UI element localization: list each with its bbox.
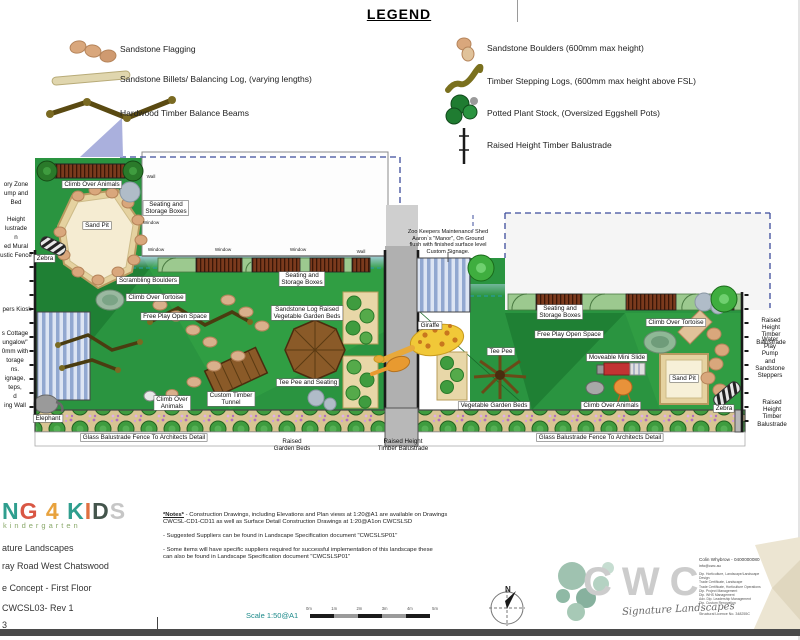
plan-label: Seating and Storage Boxes <box>537 305 582 319</box>
firm-logo: CWC <box>583 560 709 605</box>
plan-label: Water Play Pump and Sandstone Steppers <box>755 336 785 379</box>
plan-label: Elephant <box>34 415 63 422</box>
plan-label: ory Zone ump and Bed <box>4 180 28 207</box>
plan-label: Climb Over Animals <box>581 402 640 409</box>
boundary-tick-line <box>517 0 518 22</box>
legend-label: Hardwood Timber Balance Beams <box>120 108 249 118</box>
logo-subtitle: kindergarten <box>3 521 81 530</box>
plan-label: Window <box>143 220 159 225</box>
timber-stepping-logs-icon <box>444 64 484 94</box>
legend-label: Potted Plant Stock, (Oversized Eggshell … <box>487 108 660 118</box>
plan-label: Climb Over Tortoise <box>126 294 185 301</box>
notes-body: - Construction Drawings, including Eleva… <box>163 512 447 560</box>
plan-label: Giraffe <box>419 322 442 329</box>
plan-label: Custom Timber Tunnel <box>208 392 255 406</box>
legend-label: Raised Height Timber Balustrade <box>487 140 612 150</box>
plan-label: Climb Over Tortoise <box>646 319 705 326</box>
plan-label: Window <box>148 247 164 252</box>
notes-block: *Notes* - Construction Drawings, includi… <box>163 512 498 561</box>
plan-label: Glass Balustrade Fence To Architects Det… <box>81 434 207 441</box>
potted-plant-stock-icon <box>444 92 484 128</box>
plan-label: Moveable Mini Slide <box>587 354 647 361</box>
plan-label: Window <box>215 247 231 252</box>
plan-label: s Cottage ungalow" 0mm with torage ns. i… <box>2 329 28 410</box>
footer-bar <box>0 629 800 636</box>
legend-label: Timber Stepping Logs, (600mm max height … <box>487 76 696 86</box>
plan-label: Height lustrade n ed Mural ustic Fence <box>0 215 32 260</box>
plan-label: Zoo Keepers Maintenance Shed Aaron`s "Ma… <box>408 229 488 255</box>
plan-label: Window <box>290 247 306 252</box>
plan-label: Sand Pit <box>83 222 111 229</box>
contact-email: info@cwc.au <box>699 564 761 568</box>
plan-label: Wall <box>147 174 156 179</box>
plan-label: Sand Pit <box>670 375 698 382</box>
drawing-sheet: LEGEND Sandstone Flagging Sandstone Bill… <box>0 0 800 640</box>
legend-label: Sandstone Flagging <box>120 44 196 54</box>
plan-label: Tee Pee and Seating <box>277 379 339 386</box>
titleblock-row: CWCSL03- Rev 1 <box>2 603 74 613</box>
compass-north-label: N <box>505 585 511 594</box>
titleblock-row: ray Road West Chatswood <box>2 561 109 571</box>
plan-label: Seating and Storage Boxes <box>279 272 324 286</box>
plan-label: pers Kiosk <box>3 305 32 314</box>
plan-label: Tee Pee <box>487 348 514 355</box>
plan-label: Free Play Open Space <box>535 331 603 338</box>
raised-balustrade-icon <box>456 126 472 166</box>
plan-label: Climb Over Animals <box>62 181 121 188</box>
plan-label: Sandstone Log Raised Vegetable Garden Be… <box>272 306 343 320</box>
scale-ticks: 0m1m2m3m4m5m <box>306 606 438 611</box>
plan-label: Glass Balustrade Fence To Architects Det… <box>537 434 663 441</box>
plan-label: Vegetable Garden Beds <box>459 402 530 409</box>
contact-name: Colin Whybrow - 0400000080 <box>699 557 761 562</box>
sandstone-boulders-icon <box>450 36 482 64</box>
licence: Structural Licence No. 348255C <box>699 612 761 616</box>
firm-contact: Colin Whybrow - 0400000080 info@cwc.au D… <box>699 557 761 616</box>
legend-title: LEGEND <box>0 6 798 22</box>
titleblock-row: e Concept - First Floor <box>2 583 92 593</box>
credentials: Dip. Horticulture, Landscape/Landscape D… <box>699 572 761 606</box>
scale-segments <box>310 614 430 618</box>
titleblock-row: ature Landscapes <box>2 543 74 553</box>
plan-label: Wall <box>357 249 366 254</box>
legend-label: Sandstone Billets/ Balancing Log, (varyi… <box>120 74 312 84</box>
plan-label: Seating and Storage Boxes <box>143 201 188 215</box>
plan-label: Raised Height Timber Balustrade <box>757 399 787 428</box>
plan-label: Scrambling Boulders <box>117 277 179 284</box>
legend-label: Sandstone Boulders (600mm max height) <box>487 43 644 53</box>
notes-heading: *Notes* <box>163 512 184 518</box>
scale-label: Scale 1:50@A1 <box>246 611 298 620</box>
sandstone-flagging-icon <box>68 38 118 64</box>
plan-label: Climb Over Animals <box>154 396 190 410</box>
plan-label: Zebra <box>714 405 734 412</box>
plan-label: Free Play Open Space <box>141 313 209 320</box>
plan-label: Raised Height Timber Balustrade <box>378 438 428 452</box>
plan-label: Zebra <box>35 255 55 262</box>
plan-label: Raised Garden Beds <box>274 438 310 452</box>
